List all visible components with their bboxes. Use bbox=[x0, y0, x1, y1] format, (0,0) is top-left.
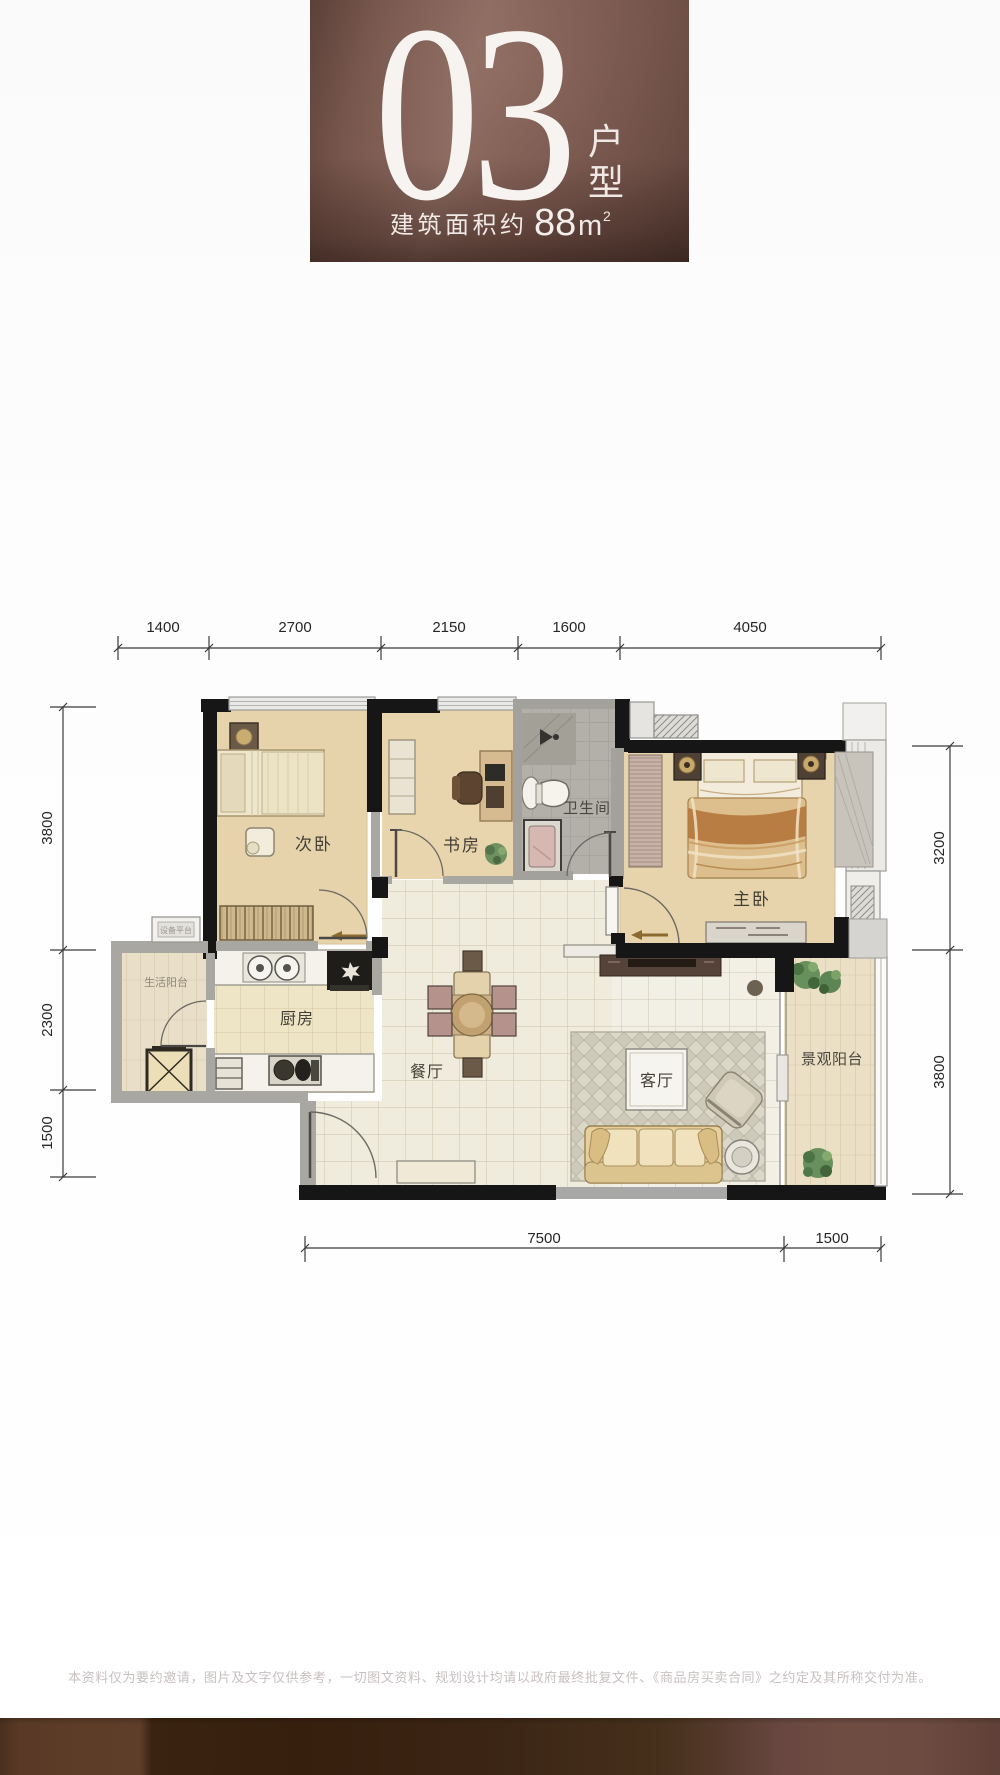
svg-text:次卧: 次卧 bbox=[295, 835, 333, 854]
svg-text:餐厅: 餐厅 bbox=[410, 1063, 444, 1081]
svg-text:1400: 1400 bbox=[146, 619, 179, 636]
svg-text:生活阳台: 生活阳台 bbox=[144, 975, 188, 989]
svg-text:1500: 1500 bbox=[39, 1116, 56, 1149]
svg-text:2150: 2150 bbox=[432, 619, 465, 636]
svg-text:2700: 2700 bbox=[278, 619, 311, 636]
svg-text:厨房: 厨房 bbox=[280, 1010, 314, 1028]
svg-text:1600: 1600 bbox=[552, 619, 585, 636]
svg-text:3200: 3200 bbox=[931, 831, 948, 864]
svg-text:1500: 1500 bbox=[815, 1230, 848, 1247]
svg-text:3800: 3800 bbox=[931, 1055, 948, 1088]
svg-text:4050: 4050 bbox=[733, 619, 766, 636]
svg-text:主卧: 主卧 bbox=[733, 890, 771, 909]
svg-text:书房: 书房 bbox=[443, 836, 481, 855]
svg-text:7500: 7500 bbox=[527, 1230, 560, 1247]
svg-text:2300: 2300 bbox=[39, 1003, 56, 1036]
svg-text:景观阳台: 景观阳台 bbox=[801, 1051, 863, 1068]
svg-text:3800: 3800 bbox=[39, 811, 56, 844]
svg-text:设备平台: 设备平台 bbox=[160, 925, 192, 935]
svg-text:客厅: 客厅 bbox=[640, 1072, 674, 1090]
svg-text:卫生间: 卫生间 bbox=[563, 800, 611, 817]
